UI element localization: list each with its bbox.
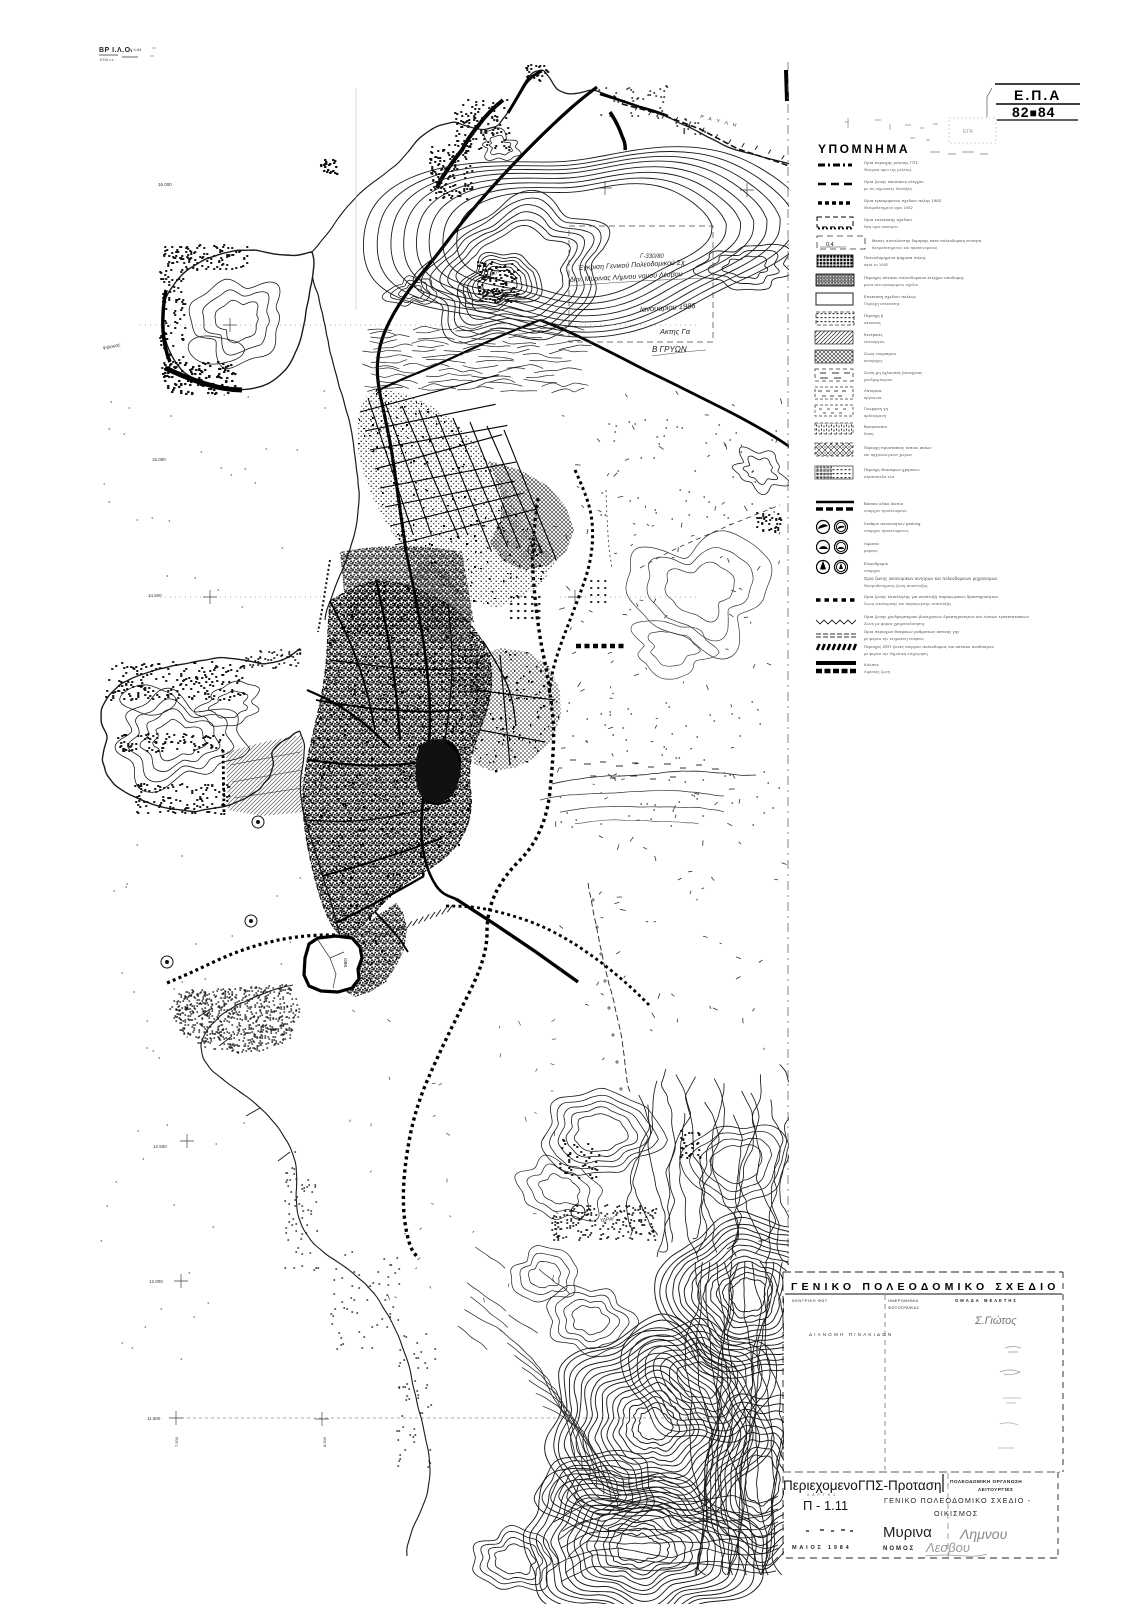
svg-text:Ορια εγκεκριμενου σχεδιου πολη: Ορια εγκεκριμενου σχεδιου πολης 1982 (864, 198, 942, 203)
svg-text:χονδρεμποριου: χονδρεμποριου (864, 378, 893, 382)
svg-text:Ορια ζωνης χονδρεμποριου βιοτε: Ορια ζωνης χονδρεμποριου βιοτεχνικων δρα… (864, 614, 1029, 619)
svg-text:Ορια περιοχης μελετης ΓΠΣ: Ορια περιοχης μελετης ΓΠΣ (864, 160, 918, 165)
svg-text:ΔΙΑΝΟΜΗ ΠΙΝΑΚΙΔΩΝ: ΔΙΑΝΟΜΗ ΠΙΝΑΚΙΔΩΝ (809, 1332, 893, 1337)
svg-text:μαρινες: μαρινες (864, 549, 878, 553)
svg-text:Ζωνη με φορεα χρηματοδοτησης: Ζωνη με φορεα χρηματοδοτησης (864, 622, 925, 626)
svg-text:Κολπος: Κολπος (864, 662, 879, 667)
svg-text:Περιοχες αστικου πολεοδομικου: Περιοχες αστικου πολεοδομικου ελεγχου υπ… (864, 275, 964, 280)
svg-text:Περιεχομενο: Περιεχομενο (783, 1478, 858, 1493)
svg-text:16.000: 16.000 (158, 182, 172, 187)
svg-text:ΥΔΡΑΓ: ΥΔΡΑΓ (599, 1216, 616, 1224)
svg-text:ΗΜΕΡΟΜΗΝΙΑ: ΗΜΕΡΟΜΗΝΙΑ (888, 1298, 919, 1303)
svg-text:Β ΓΡΥΩΝ: Β ΓΡΥΩΝ (652, 345, 687, 354)
svg-text:Ορια ζωνης καταλληλης για αναπ: Ορια ζωνης καταλληλης για αναπτυξη παραγ… (864, 594, 999, 599)
svg-text:ΓΠΣ-Προταση: ΓΠΣ-Προταση (858, 1478, 942, 1493)
svg-text:υπαρχον προτεινομενο: υπαρχον προτεινομενο (864, 509, 907, 513)
svg-text:Θεσμοθετημενη ζωνη αναπτυξης: Θεσμοθετημενη ζωνη αναπτυξης (864, 583, 928, 588)
svg-text:Λιμανια: Λιμανια (864, 541, 879, 546)
svg-text:θεσμοθετημενος και προτεινομεν: θεσμοθετημενος και προτεινομενος (872, 246, 938, 250)
svg-text:Θεσμοθετημενο οριο 1982: Θεσμοθετημενο οριο 1982 (864, 206, 913, 210)
svg-text:Λιμενικη ζωνη: Λιμενικη ζωνη (864, 670, 890, 674)
svg-text:ΝΟΜΟΣ: ΝΟΜΟΣ (883, 1546, 915, 1552)
svg-text:Χ Α Ρ Τ Η Σ: Χ Α Ρ Τ Η Σ (807, 1493, 837, 1497)
svg-text:κατοικιας: κατοικιας (864, 321, 881, 325)
svg-text:Βοσκοτοποι: Βοσκοτοποι (864, 424, 887, 429)
svg-text:ΟΒΚ: ΟΒΚ (343, 958, 348, 968)
svg-text:με τις ισχυουσες διαταξεις: με τις ισχυουσες διαταξεις (864, 187, 913, 191)
svg-text:ΜΑΙΟΣ 1984: ΜΑΙΟΣ 1984 (792, 1545, 851, 1551)
svg-text:αναψυχης: αναψυχης (864, 359, 883, 363)
svg-text:Γ-330/80: Γ-330/80 (640, 254, 664, 260)
svg-text:με φορεα την δημοτικη επιχειρη: με φορεα την δημοτικη επιχειρηση (864, 652, 928, 656)
svg-text:Μυρινα: Μυρινα (883, 1524, 932, 1541)
svg-text:Οριο ζωνης οικονομικων κινητρω: Οριο ζωνης οικονομικων κινητρων και πολε… (864, 576, 997, 581)
svg-text:στρατοπεδα κλπ: στρατοπεδα κλπ (864, 475, 895, 479)
svg-text:Περιοχη προστασιας τοπιου ακτω: Περιοχη προστασιας τοπιου ακτων (864, 445, 932, 450)
svg-text:ΟΙΚΙΣΜΟΣ: ΟΙΚΙΣΜΟΣ (934, 1509, 978, 1518)
svg-text:Ζωνη οικονομικης και παραγωγικ: Ζωνη οικονομικης και παραγωγικης αναπτυξ… (864, 602, 951, 606)
svg-text:Ορια περιοχων θεσμικων ρυθμισε: Ορια περιοχων θεσμικων ρυθμισεων αστικης… (864, 629, 959, 634)
svg-text:κατα το 1982: κατα το 1982 (864, 263, 888, 267)
svg-text:6 4-84: 6 4-84 (130, 47, 142, 52)
svg-text:Ζωνη τουρισμου: Ζωνη τουρισμου (864, 351, 896, 356)
svg-text:Λατομεια: Λατομεια (864, 388, 882, 393)
svg-text:δαση: δαση (864, 432, 874, 436)
svg-text:Πυκνοδομημενα τμηματα πολης: Πυκνοδομημενα τμηματα πολης (864, 255, 926, 260)
svg-text:υπαρχον προτεινομενος: υπαρχον προτεινομενος (864, 529, 909, 533)
svg-text:Ιανουαρίου 1986: Ιανουαρίου 1986 (640, 301, 697, 314)
svg-text:ΥΠΟΜΝΗΜΑ: ΥΠΟΜΝΗΜΑ (818, 142, 910, 156)
svg-text:8.000: 8.000 (322, 1436, 327, 1447)
svg-text:Περιοχες ΖΕΠ ζωνες ενεργου πολ: Περιοχες ΖΕΠ ζωνες ενεργου πολεοδομιας κ… (864, 644, 994, 649)
svg-text:ΚΕΝΤΡΙΚΗ ΦΩΤ: ΚΕΝΤΡΙΚΗ ΦΩΤ (792, 1298, 828, 1303)
svg-text:ΕΓΑ: ΕΓΑ (963, 129, 973, 135)
svg-text:Ορια ζωνης οικιστικου ελεγχου: Ορια ζωνης οικιστικου ελεγχου (864, 179, 924, 184)
svg-text:Ορια επεκτασης σχεδιου: Ορια επεκτασης σχεδιου (864, 217, 912, 222)
svg-text:11.500: 11.500 (147, 1416, 161, 1421)
svg-text:ΛΕΙΤΟΥΡΓΙΕΣ: ΛΕΙΤΟΥΡΓΙΕΣ (978, 1487, 1013, 1493)
svg-text:Επεκταση σχεδιου πολεως: Επεκταση σχεδιου πολεως (864, 294, 916, 299)
svg-text:ΕΠΑ τ.ε.: ΕΠΑ τ.ε. (100, 57, 115, 62)
svg-text:Λεσβου: Λεσβου (925, 1540, 970, 1555)
svg-text:ΠΟΛΕΟΔΟΜΙΚΗ ΟΡΓΑΝΩΣΗ: ΠΟΛΕΟΔΟΜΙΚΗ ΟΡΓΑΝΩΣΗ (950, 1479, 1022, 1485)
svg-text:μεσα στο εγκεκριμενο σχεδιο: μεσα στο εγκεκριμενο σχεδιο (864, 283, 918, 287)
svg-text:Κεντρικες: Κεντρικες (864, 332, 883, 337)
svg-text:Ψιλονος: Ψιλονος (102, 342, 122, 352)
svg-text:Ρ Α Υ Λ Η: Ρ Α Υ Λ Η (700, 114, 739, 129)
svg-text:υπαρχον: υπαρχον (864, 569, 880, 573)
svg-text:Σ.Γιώτος: Σ.Γιώτος (974, 1315, 1017, 1327)
svg-text:ΟΜΑΔΑ ΜΕΛΕΤΗΣ: ΟΜΑΔΑ ΜΕΛΕΤΗΣ (955, 1298, 1018, 1303)
svg-text:Ακτης Γα: Ακτης Γα (659, 327, 691, 336)
svg-text:15.000: 15.000 (152, 457, 166, 462)
svg-text:ΓΕΝΙΚΟ ΠΟΛΕΟΔΟΜΙΚΟ ΣΧΕΔΙΟ: ΓΕΝΙΚΟ ΠΟΛΕΟΔΟΜΙΚΟ ΣΧΕΔΙΟ (791, 1281, 1060, 1293)
svg-text:αρδευομενη: αρδευομενη (864, 414, 886, 418)
svg-text:με φορεα την κτηματικη εταιρει: με φορεα την κτηματικη εταιρεια (864, 637, 924, 641)
svg-text:και αρχαιολογικων χωρων: και αρχαιολογικων χωρων (864, 453, 912, 457)
svg-text:Περιοχη επεκτασης: Περιοχη επεκτασης (864, 302, 900, 306)
svg-text:ΓΕΝΙΚΟ ΠΟΛΕΟΔΟΜΙΚΟ ΣΧΕΔΙΟ: ΓΕΝΙΚΟ ΠΟΛΕΟΔΟΜΙΚΟ ΣΧΕΔΙΟ - (884, 1496, 1031, 1505)
svg-text:Ελικοδρομιο: Ελικοδρομιο (864, 561, 889, 566)
svg-text:Γεωργικη γη: Γεωργικη γη (864, 406, 888, 411)
svg-text:Περιοχη ιδιαιτερων χρησεων: Περιοχη ιδιαιτερων χρησεων (864, 467, 920, 472)
svg-text:12.000: 12.000 (149, 1279, 163, 1284)
svg-text:Περιοχη β: Περιοχη β (864, 313, 884, 318)
svg-text:αργουντα: αργουντα (864, 396, 882, 400)
svg-text:12.500: 12.500 (153, 1144, 167, 1149)
svg-text:ΦΩΤΟΓΡΑΦΙΑΣ: ΦΩΤΟΓΡΑΦΙΑΣ (888, 1305, 920, 1310)
svg-text:Π - 1.11: Π - 1.11 (803, 1498, 848, 1513)
svg-text:Ζωνη μη οχλουσας βιοτεχνιας: Ζωνη μη οχλουσας βιοτεχνιας (864, 370, 922, 375)
svg-text:Θεσμικα οριο της μελετης: Θεσμικα οριο της μελετης (864, 168, 912, 172)
svg-text:Ε.Π.Α: Ε.Π.Α (1014, 87, 1061, 103)
svg-text:Νεα οριο οικισμου: Νεα οριο οικισμου (864, 225, 898, 229)
svg-text:λειτουργιες: λειτουργιες (864, 340, 885, 344)
svg-text:Μεσος συντελεστης δομησης κατα: Μεσος συντελεστης δομησης κατα πολεοδομι… (872, 238, 982, 243)
svg-text:ΒΡ Ι.Λ.Ο.: ΒΡ Ι.Λ.Ο. (99, 47, 133, 54)
svg-text:Σταθμοι αυτοκινητων parking: Σταθμοι αυτοκινητων parking (864, 521, 921, 526)
svg-text:82■84: 82■84 (1012, 104, 1055, 120)
svg-text:Βασικο οδικο δικτυο: Βασικο οδικο δικτυο (864, 501, 904, 506)
svg-text:7.500: 7.500 (174, 1436, 179, 1447)
